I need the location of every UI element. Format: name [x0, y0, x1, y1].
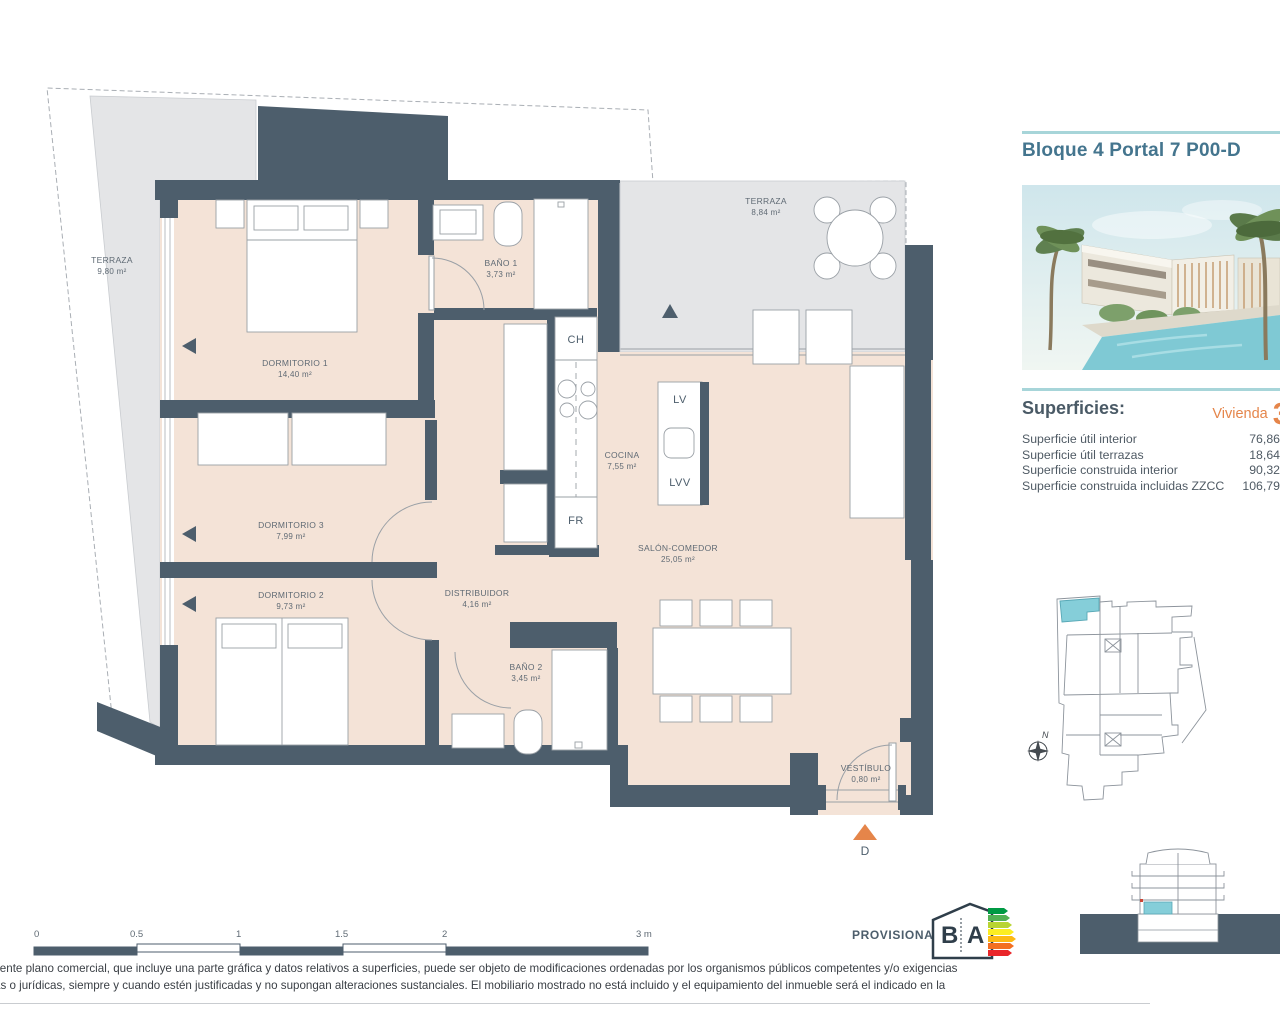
compass-icon: N — [1027, 730, 1049, 762]
room-label-vestibulo: VESTÍBULO0,80 m² — [841, 763, 891, 785]
svg-text:1.5: 1.5 — [335, 929, 348, 940]
section-diagram — [1080, 840, 1280, 965]
armchair-icon — [753, 310, 799, 364]
room-label-bano-2: BAÑO 23,45 m² — [510, 662, 543, 684]
dining-chair-icon — [700, 600, 732, 626]
vivienda-number: 3 — [1273, 396, 1280, 431]
room-label-bano-1: BAÑO 13,73 m² — [485, 258, 518, 280]
pillow-icon — [288, 624, 342, 648]
appliance-label-lv: LV — [673, 394, 687, 406]
vivienda-label: Vivienda3 — [1212, 396, 1280, 432]
dining-chair-icon — [660, 600, 692, 626]
room-label-dormitorio-3: DORMITORIO 37,99 m² — [258, 520, 324, 542]
svg-text:A: A — [967, 922, 984, 949]
dining-chair-icon — [740, 600, 772, 626]
room-label-dormitorio-2: DORMITORIO 29,73 m² — [258, 590, 324, 612]
closet-icon — [504, 484, 547, 542]
terrace-table-icon — [827, 210, 883, 266]
entrance-marker-triangle — [853, 824, 877, 840]
footer-divider-line — [0, 1003, 1150, 1004]
svg-text:0: 0 — [34, 929, 39, 940]
highlighted-unit — [1060, 598, 1099, 622]
sofa-icon — [850, 366, 904, 518]
room-label-dormitorio-1: DORMITORIO 114,40 m² — [262, 358, 328, 380]
svg-text:3 m: 3 m — [636, 929, 652, 940]
pillow-icon — [304, 206, 348, 230]
surface-row: Superficie útil interior76,86 — [1022, 432, 1280, 448]
dining-chair-icon — [700, 696, 732, 722]
highlighted-unit-section — [1144, 902, 1172, 914]
nightstand-icon — [216, 200, 244, 228]
dining-chair-icon — [660, 696, 692, 722]
surface-row: Superficie construida incluidas ZZCC106,… — [1022, 479, 1280, 495]
toilet-icon — [494, 202, 522, 246]
energy-arrow-bars — [988, 908, 1016, 956]
shower-icon — [534, 199, 588, 309]
sink-icon — [452, 714, 504, 748]
bed-single-icon — [198, 413, 288, 465]
appliance-label-fr: FR — [568, 515, 584, 527]
sink-basin-icon — [440, 210, 476, 234]
surface-table: Superficie útil interior76,86 Superficie… — [1022, 432, 1280, 494]
surface-row: Superficie construida interior90,32 — [1022, 463, 1280, 479]
nightstand-icon — [360, 200, 388, 228]
surface-row: Superficie útil terrazas18,64 — [1022, 448, 1280, 464]
svg-text:B: B — [941, 922, 958, 949]
svg-text:N: N — [1042, 730, 1049, 740]
building-render-image — [1022, 185, 1280, 370]
left-window-glazing — [162, 218, 174, 645]
disclaimer-line-1: sente plano comercial, que incluye una p… — [0, 960, 1114, 977]
svg-text:1: 1 — [236, 929, 241, 940]
superficies-heading: Superficies: — [1022, 398, 1125, 419]
svg-text:0.5: 0.5 — [130, 929, 143, 940]
panel-top-rule — [1022, 131, 1280, 134]
dining-table-icon — [653, 628, 791, 694]
key-plan-diagram: N — [1010, 575, 1280, 825]
appliance-label-lvv: LVV — [669, 477, 690, 489]
room-label-cocina: COCINA7,55 m² — [605, 450, 640, 472]
toilet-icon — [514, 710, 542, 754]
disclaimer-line-2: as o jurídicas, siempre y cuando estén j… — [0, 977, 1114, 994]
scale-bar: 0 0.5 1 1.5 2 3 m — [20, 925, 680, 963]
desk-icon — [292, 413, 386, 465]
closet-icon — [504, 324, 547, 470]
dining-chair-icon — [740, 696, 772, 722]
entrance-marker-label: D — [861, 844, 870, 858]
room-label-salon-comedor: SALÓN-COMEDOR25,05 m² — [638, 543, 718, 565]
energy-rating-icon: B A — [928, 898, 1018, 964]
pillow-icon — [222, 624, 276, 648]
svg-text:2: 2 — [442, 929, 447, 940]
armchair-icon — [806, 310, 852, 364]
floor-plan-drawing — [0, 0, 1000, 1024]
appliance-label-ch: CH — [568, 334, 585, 346]
room-label-distribuidor: DISTRIBUIDOR4,16 m² — [445, 588, 510, 610]
pillow-icon — [254, 206, 298, 230]
panel-mid-rule — [1022, 388, 1280, 391]
shower-icon — [552, 650, 607, 750]
room-label-terraza-left: TERRAZA9,80 m² — [91, 255, 133, 277]
panel-title: Bloque 4 Portal 7 P00-D — [1022, 140, 1280, 162]
room-label-terraza-top: TERRAZA8,84 m² — [745, 196, 787, 218]
island-sink-icon — [664, 428, 694, 458]
